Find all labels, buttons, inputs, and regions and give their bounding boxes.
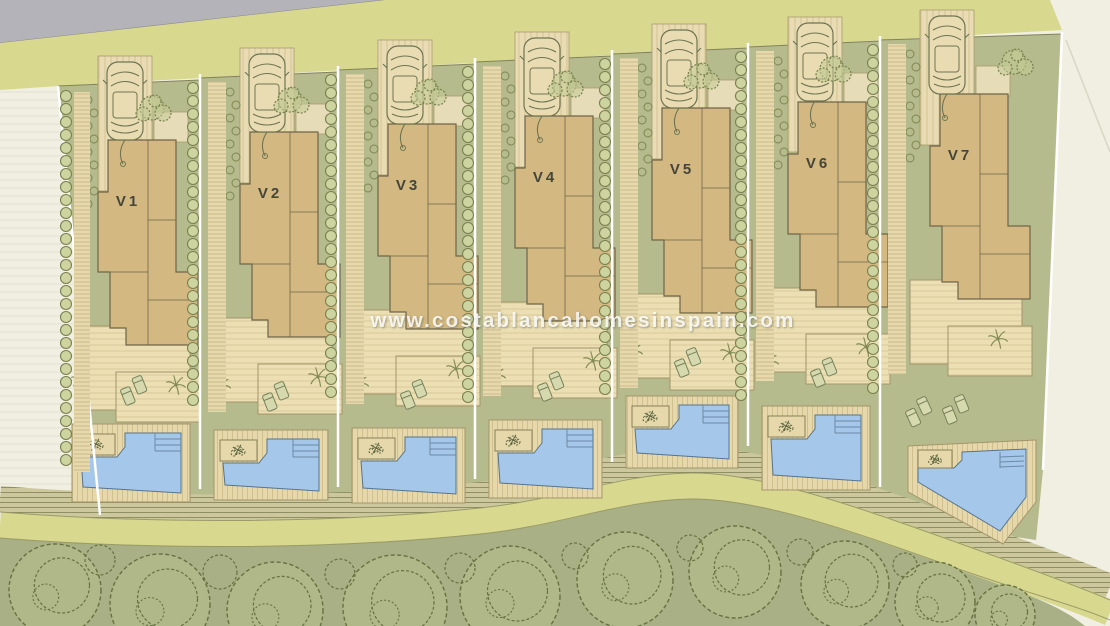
hedge-bush: [463, 145, 474, 156]
hedge-bush: [736, 156, 747, 167]
hedge-bush: [868, 240, 879, 251]
hedge-bush: [326, 348, 337, 359]
hedge-bush: [463, 80, 474, 91]
site-plan-page: V1V2V3V4V5V6V7 www.costablancahomesinspa…: [0, 0, 1110, 626]
hedge-bush: [736, 182, 747, 193]
hedge-bush: [188, 317, 199, 328]
hedge-bush: [868, 149, 879, 160]
hedge-bush: [868, 357, 879, 368]
hedge-bush: [600, 345, 611, 356]
villa-label: V1: [116, 193, 140, 210]
hedge-path: [346, 74, 364, 404]
terrace-step: [948, 326, 1032, 376]
hedge-bush: [600, 293, 611, 304]
hedge-bush: [188, 252, 199, 263]
grove-tree-icon: [689, 526, 781, 618]
hedge-bush: [61, 455, 72, 466]
hedge-bush: [61, 429, 72, 440]
hedge-bush: [326, 205, 337, 216]
hedge-bush: [61, 143, 72, 154]
hedge-bush: [326, 296, 337, 307]
hedge-bush: [188, 148, 199, 159]
hedge-bush: [188, 382, 199, 393]
hedge-path: [888, 44, 906, 374]
hedge-bush: [463, 93, 474, 104]
hedge-bush: [61, 247, 72, 258]
villa-label: V6: [806, 155, 830, 172]
hedge-bush: [736, 273, 747, 284]
hedge-bush: [868, 162, 879, 173]
hedge-bush: [736, 65, 747, 76]
hedge-bush: [463, 67, 474, 78]
hedge-bush: [736, 52, 747, 63]
hedge-bush: [61, 442, 72, 453]
hedge-bush: [61, 169, 72, 180]
hedge-bush: [188, 187, 199, 198]
hedge-bush: [736, 299, 747, 310]
hedge-bush: [868, 318, 879, 329]
hedge-bush: [61, 416, 72, 427]
hedge-bush: [736, 195, 747, 206]
hedge-bush: [868, 344, 879, 355]
hedge-bush: [600, 371, 611, 382]
hedge-bush: [736, 78, 747, 89]
hedge-bush: [736, 260, 747, 271]
hedge-bush: [188, 96, 199, 107]
hedge-bush: [188, 356, 199, 367]
hedge-bush: [188, 83, 199, 94]
hedge-bush: [61, 312, 72, 323]
hedge-bush: [736, 169, 747, 180]
hedge-bush: [326, 322, 337, 333]
hedge-bush: [188, 239, 199, 250]
hedge-bush: [868, 110, 879, 121]
hedge-bush: [326, 101, 337, 112]
hedge-bush: [600, 72, 611, 83]
hedge-bush: [61, 91, 72, 102]
hedge-bush: [736, 364, 747, 375]
hedge-bush: [61, 156, 72, 167]
hedge-bush: [326, 127, 337, 138]
hedge-bush: [61, 390, 72, 401]
hedge-bush: [868, 45, 879, 56]
hedge-bush: [188, 395, 199, 406]
hedge-bush: [326, 114, 337, 125]
hedge-bush: [61, 351, 72, 362]
hedge-bush: [600, 215, 611, 226]
hedge-bush: [868, 58, 879, 69]
villa-label: V5: [670, 161, 694, 178]
hedge-bush: [188, 200, 199, 211]
hedge-bush: [61, 104, 72, 115]
hedge-bush: [61, 208, 72, 219]
hedge-bush: [463, 262, 474, 273]
hedge-bush: [326, 179, 337, 190]
hedge-bush: [463, 223, 474, 234]
hedge-bush: [736, 338, 747, 349]
hedge-bush: [600, 85, 611, 96]
hedge-bush: [326, 75, 337, 86]
hedge-bush: [600, 137, 611, 148]
hedge-bush: [188, 291, 199, 302]
hedge-bush: [600, 189, 611, 200]
hedge-bush: [463, 106, 474, 117]
hedge-bush: [868, 175, 879, 186]
hedge-bush: [463, 119, 474, 130]
hedge-path: [74, 92, 90, 472]
hedge-bush: [600, 124, 611, 135]
hedge-bush: [600, 111, 611, 122]
hedge-bush: [736, 143, 747, 154]
hedge-bush: [868, 71, 879, 82]
site-plan-svg: V1V2V3V4V5V6V7 www.costablancahomesinspa…: [0, 0, 1110, 626]
hedge-bush: [326, 244, 337, 255]
hedge-bush: [600, 241, 611, 252]
hedge-bush: [868, 227, 879, 238]
hedge-bush: [61, 338, 72, 349]
hedge-bush: [188, 213, 199, 224]
hedge-bush: [736, 130, 747, 141]
hedge-bush: [463, 171, 474, 182]
hedge-bush: [326, 166, 337, 177]
hedge-bush: [326, 257, 337, 268]
hedge-bush: [188, 135, 199, 146]
grove-tree-icon: [577, 532, 673, 626]
hedge-bush: [61, 325, 72, 336]
hedge-bush: [188, 330, 199, 341]
hedge-bush: [463, 197, 474, 208]
hedge-bush: [188, 265, 199, 276]
hedge-bush: [326, 231, 337, 242]
hedge-bush: [463, 288, 474, 299]
hedge-bush: [868, 123, 879, 134]
hedge-bush: [736, 390, 747, 401]
hedge-bush: [61, 234, 72, 245]
hedge-bush: [61, 286, 72, 297]
villa-label: V3: [396, 177, 420, 194]
hedge-bush: [600, 176, 611, 187]
hedge-bush: [868, 214, 879, 225]
hedge-bush: [600, 228, 611, 239]
hedge-bush: [736, 91, 747, 102]
hedge-bush: [463, 184, 474, 195]
hedge-bush: [600, 59, 611, 70]
hedge-bush: [188, 278, 199, 289]
hedge-bush: [61, 130, 72, 141]
hedge-bush: [61, 221, 72, 232]
hedge-path: [208, 82, 226, 412]
hedge-bush: [868, 370, 879, 381]
hedge-bush: [600, 254, 611, 265]
hedge-bush: [463, 379, 474, 390]
hedge-bush: [736, 117, 747, 128]
hedge-bush: [61, 364, 72, 375]
hedge-bush: [736, 351, 747, 362]
hedge-bush: [868, 305, 879, 316]
hedge-bush: [326, 140, 337, 151]
hedge-bush: [188, 343, 199, 354]
hedge-path: [620, 58, 638, 388]
hedge-bush: [600, 280, 611, 291]
hedge-bush: [463, 392, 474, 403]
hedge-path: [483, 66, 501, 396]
hedge-bush: [463, 366, 474, 377]
hedge-bush: [868, 188, 879, 199]
hedge-bush: [188, 161, 199, 172]
hedge-bush: [463, 340, 474, 351]
hedge-bush: [600, 150, 611, 161]
hedge-bush: [463, 236, 474, 247]
hedge-bush: [326, 361, 337, 372]
hedge-bush: [868, 253, 879, 264]
hedge-bush: [463, 210, 474, 221]
hedge-bush: [463, 158, 474, 169]
villa-label: V7: [948, 147, 972, 164]
hedge-bush: [868, 383, 879, 394]
villa-label: V2: [258, 185, 282, 202]
hedge-bush: [188, 109, 199, 120]
hedge-bush: [326, 153, 337, 164]
hedge-bush: [868, 279, 879, 290]
hedge-bush: [600, 163, 611, 174]
hedge-bush: [188, 304, 199, 315]
hedge-bush: [326, 283, 337, 294]
hedge-bush: [736, 208, 747, 219]
hedge-bush: [736, 286, 747, 297]
hedge-bush: [188, 174, 199, 185]
hedge-bush: [326, 387, 337, 398]
hedge-bush: [600, 267, 611, 278]
hedge-bush: [61, 260, 72, 271]
hedge-bush: [326, 88, 337, 99]
hedge-bush: [600, 202, 611, 213]
hedge-bush: [61, 299, 72, 310]
hedge-bush: [868, 331, 879, 342]
hedge-bush: [326, 270, 337, 281]
hedge-bush: [326, 192, 337, 203]
hedge-bush: [326, 374, 337, 385]
hedge-bush: [463, 353, 474, 364]
hedge-bush: [600, 384, 611, 395]
hedge-bush: [600, 358, 611, 369]
hedge-bush: [736, 247, 747, 258]
hedge-bush: [188, 226, 199, 237]
hedge-bush: [868, 292, 879, 303]
hedge-bush: [463, 132, 474, 143]
hedge-bush: [868, 201, 879, 212]
hedge-bush: [868, 97, 879, 108]
watermark-text: www.costablancahomesinspain.com: [369, 309, 795, 332]
villa-label: V4: [533, 169, 557, 186]
hedge-bush: [326, 309, 337, 320]
hedge-bush: [736, 377, 747, 388]
hedge-bush: [61, 117, 72, 128]
hedge-bush: [868, 84, 879, 95]
hedge-bush: [736, 221, 747, 232]
grove-tree-icon: [801, 541, 889, 626]
hedge-bush: [188, 122, 199, 133]
hedge-bush: [61, 195, 72, 206]
hedge-bush: [61, 182, 72, 193]
hedge-bush: [326, 335, 337, 346]
hedge-bush: [736, 234, 747, 245]
hedge-bush: [61, 273, 72, 284]
hedge-bush: [868, 266, 879, 277]
hedge-bush: [600, 332, 611, 343]
hedge-bush: [188, 369, 199, 380]
hedge-bush: [61, 377, 72, 388]
hedge-bush: [736, 104, 747, 115]
hedge-bush: [463, 275, 474, 286]
hedge-bush: [868, 136, 879, 147]
hedge-bush: [61, 403, 72, 414]
hedge-bush: [463, 249, 474, 260]
hedge-bush: [326, 218, 337, 229]
hedge-bush: [600, 98, 611, 109]
